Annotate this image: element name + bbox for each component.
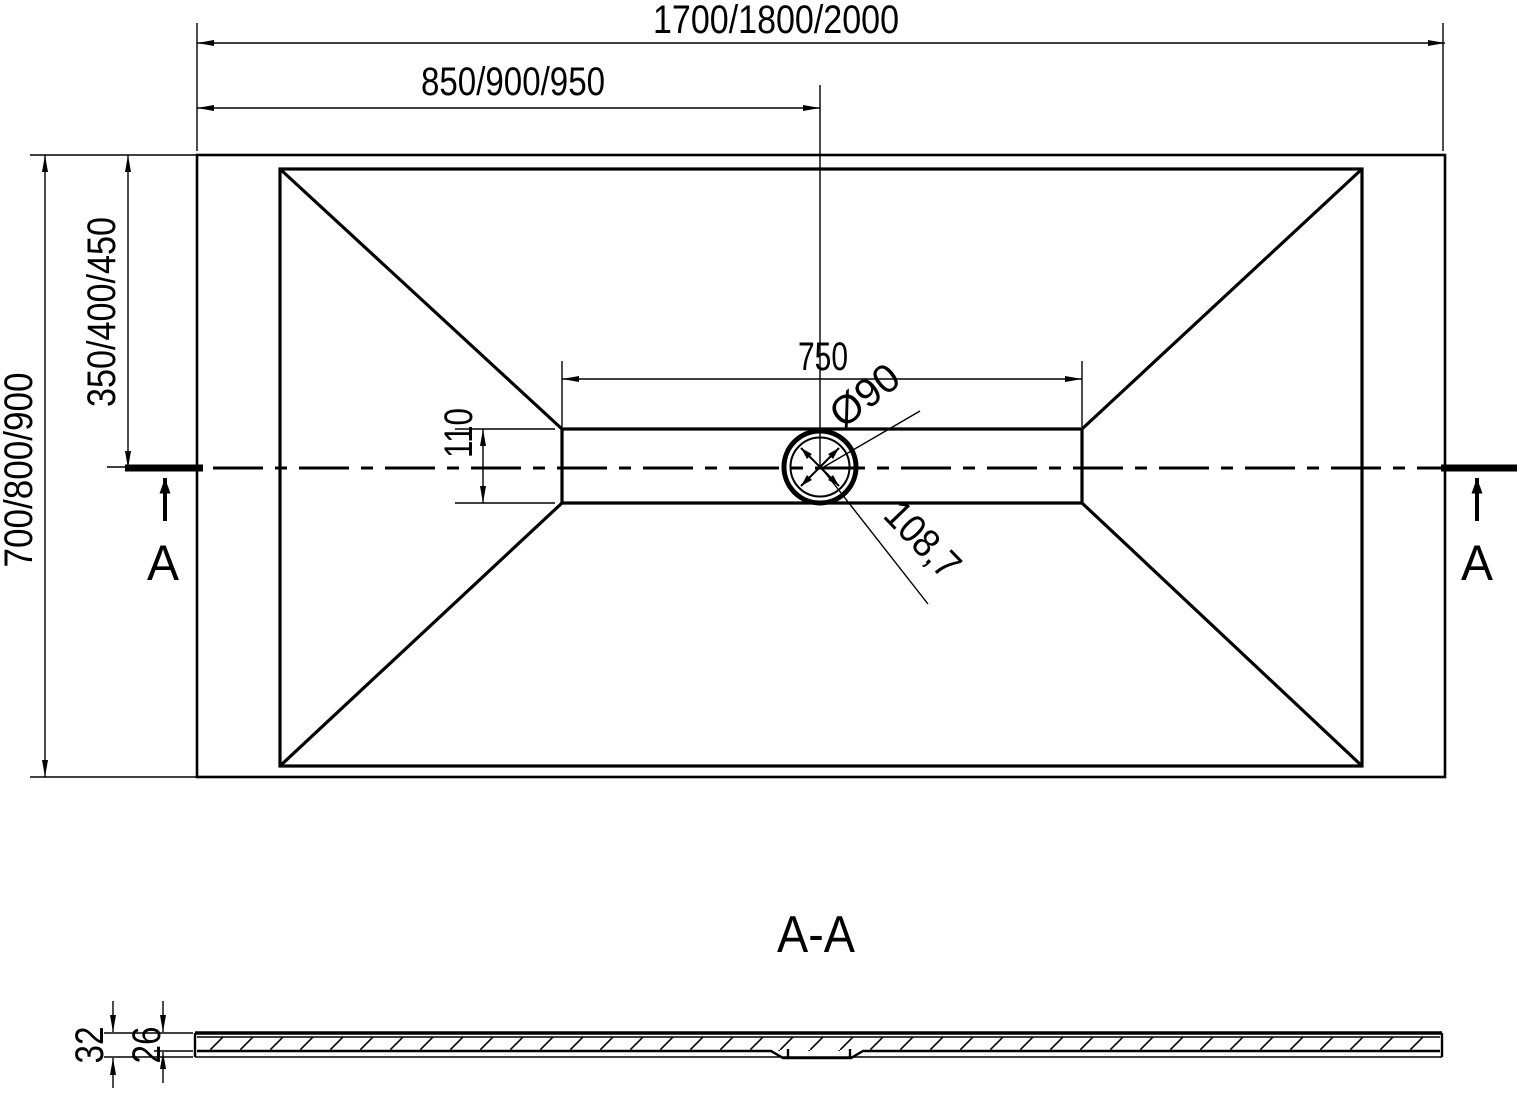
section-view: A-A 32 26 xyxy=(68,906,1442,1088)
section-label-right: A xyxy=(1461,535,1494,591)
dim-text-total-thickness: 32 xyxy=(68,1027,112,1064)
slope-diagonal-bottom-left xyxy=(280,503,562,766)
dim-text-base-thickness: 26 xyxy=(125,1027,169,1064)
drain-arrow-sw xyxy=(801,467,820,486)
drawing-canvas: A A 1700/180 xyxy=(0,0,1527,1112)
top-view: A A 1700/180 xyxy=(0,0,1517,777)
section-hatch xyxy=(197,1037,1440,1051)
slope-diagonal-top-right xyxy=(1082,169,1362,429)
dim-text-drain-diagonal: 108,7 xyxy=(875,492,969,587)
technical-drawing-shower-tray: A A 1700/180 xyxy=(0,0,1527,1112)
dim-text-channel-width: 110 xyxy=(437,408,481,458)
slope-diagonal-bottom-right xyxy=(1082,503,1362,766)
extension-lines xyxy=(30,23,1443,777)
section-label-left: A xyxy=(147,535,180,591)
dim-text-overall-width: 1700/1800/2000 xyxy=(653,0,899,42)
dim-text-center-width: 850/900/950 xyxy=(421,60,605,104)
dim-text-channel-length: 750 xyxy=(798,335,848,379)
slope-diagonal-top-left xyxy=(280,169,562,429)
dim-text-overall-depth: 700/800/900 xyxy=(0,373,41,568)
drain-arrow-nw xyxy=(801,448,820,467)
drain-arrow-se xyxy=(820,467,839,486)
dim-text-center-depth: 350/400/450 xyxy=(80,217,124,407)
section-title: A-A xyxy=(777,906,855,964)
